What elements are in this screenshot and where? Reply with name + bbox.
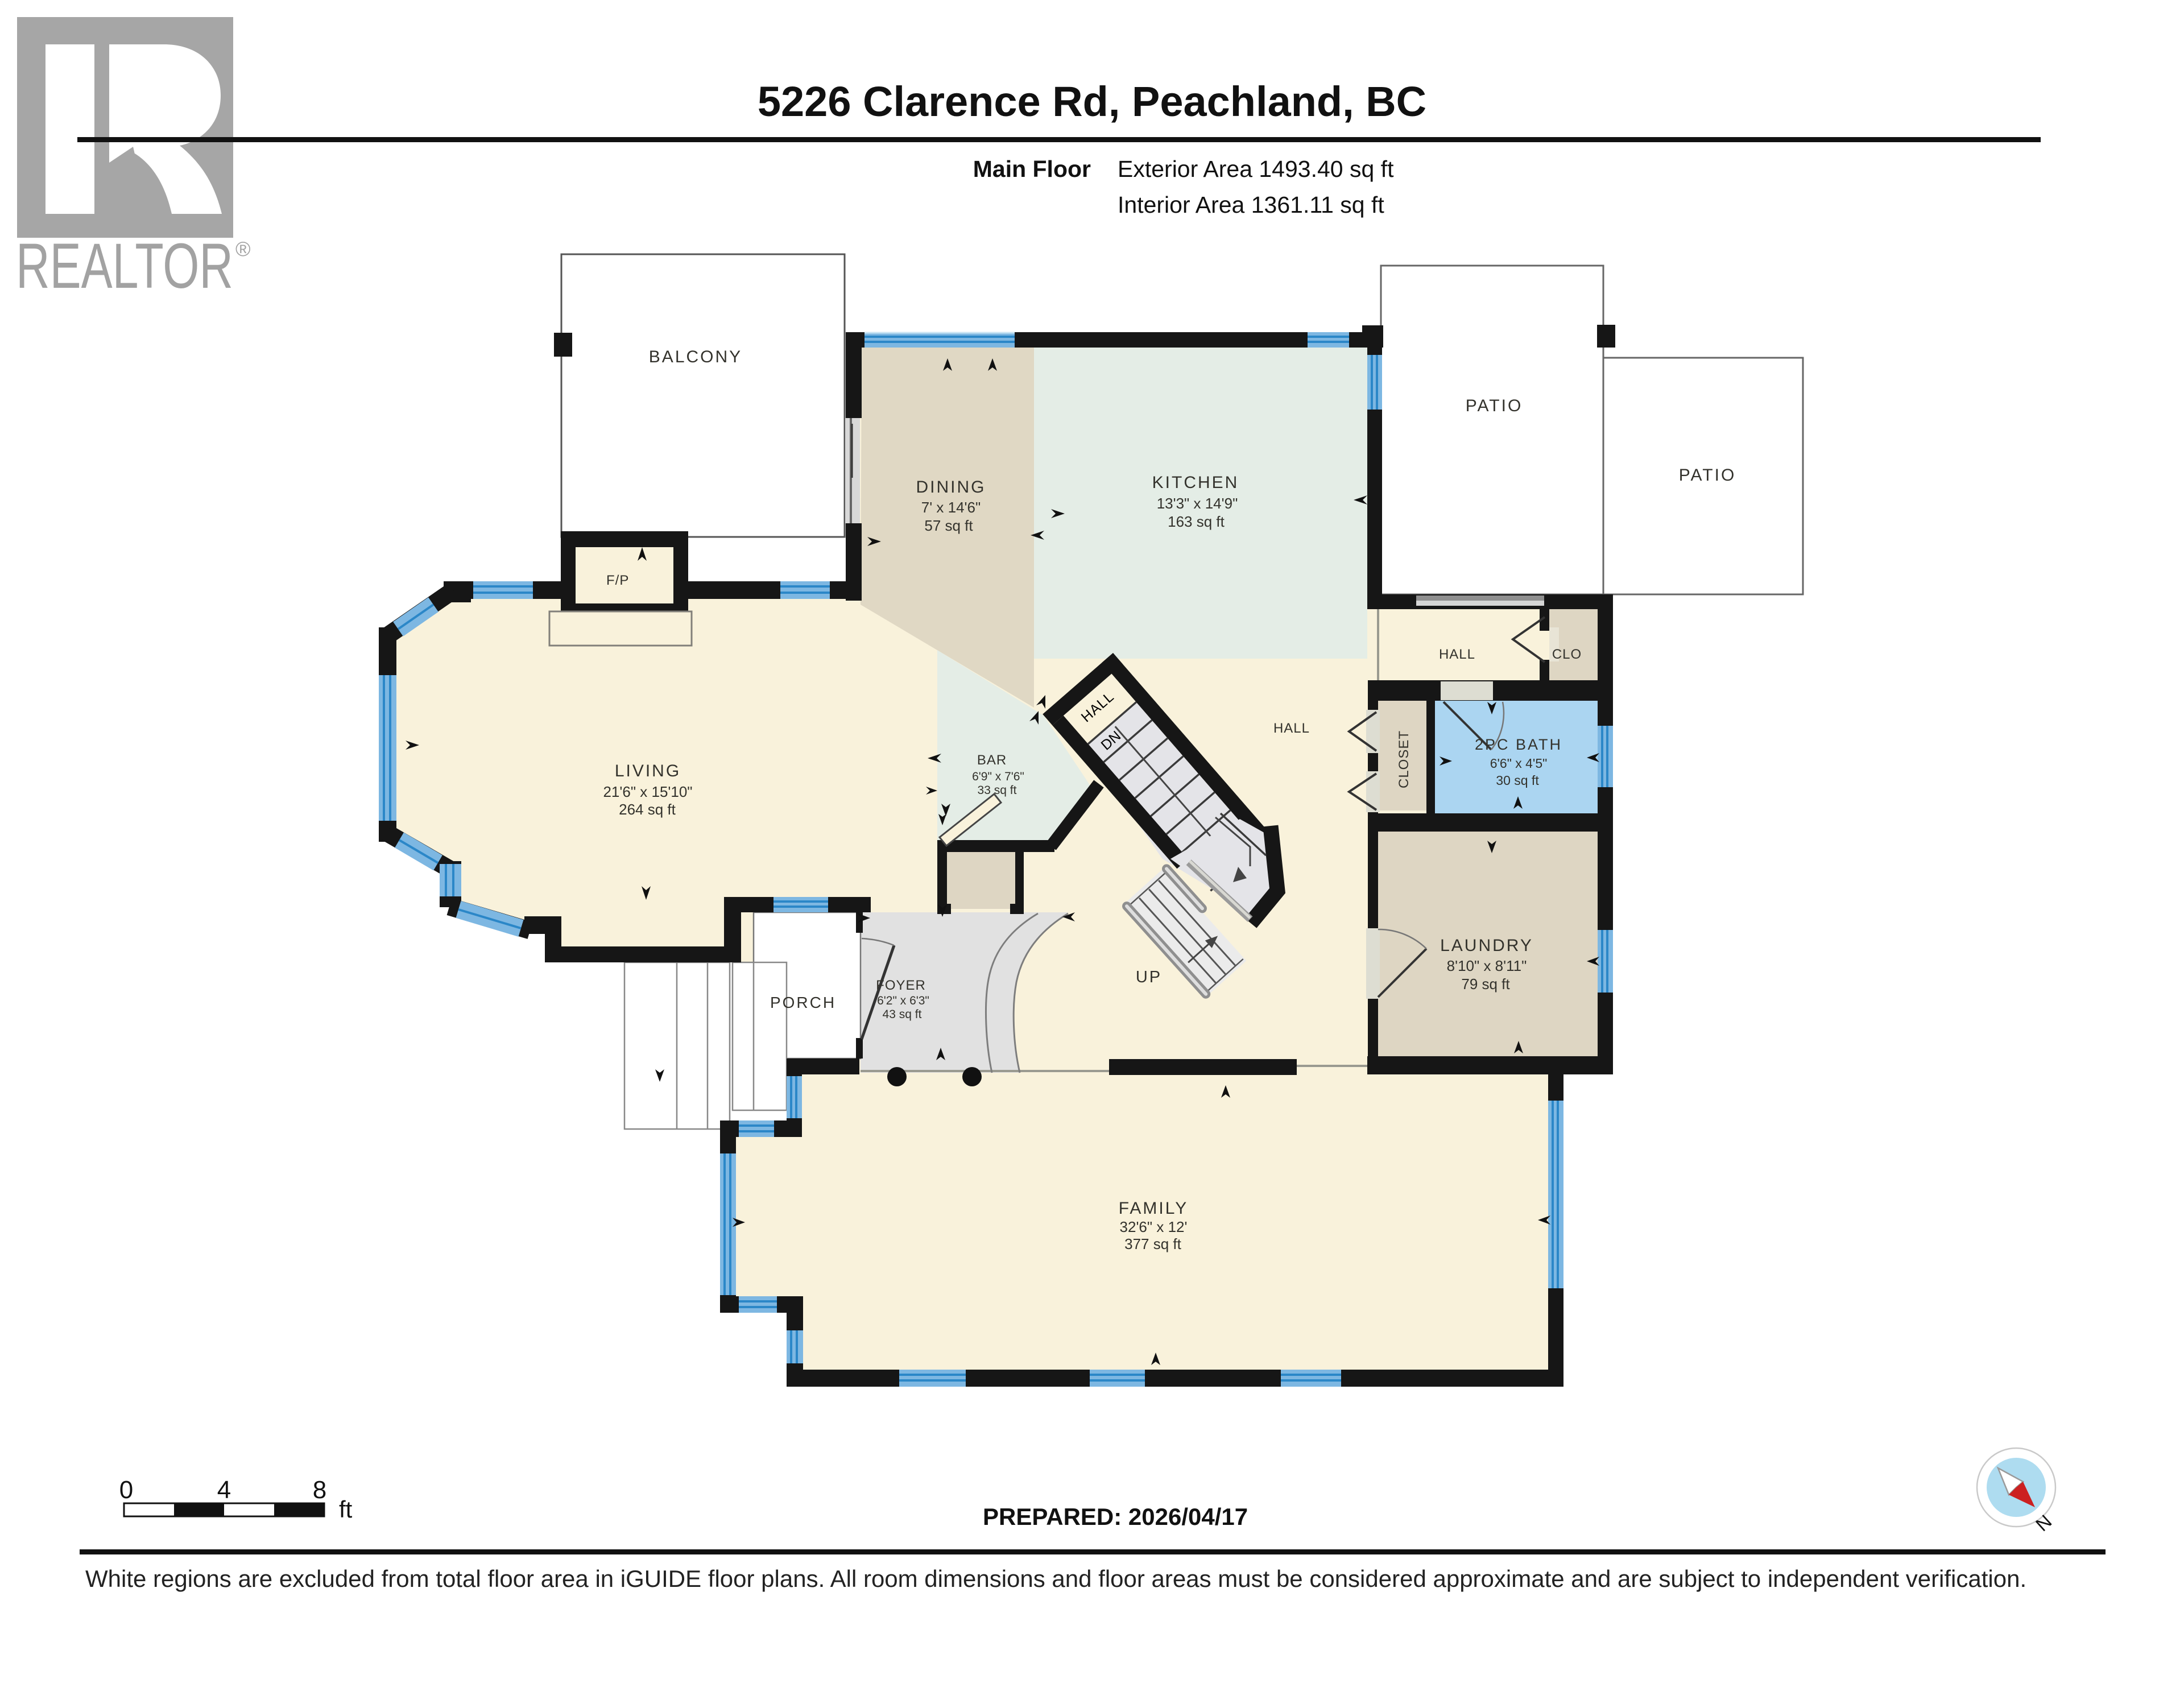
svg-text:BALCONY: BALCONY	[649, 348, 742, 366]
svg-text:BAR: BAR	[977, 752, 1007, 768]
svg-text:FAMILY: FAMILY	[1119, 1199, 1188, 1218]
svg-text:CLOSET: CLOSET	[1396, 730, 1412, 788]
svg-text:8: 8	[313, 1476, 326, 1504]
svg-text:HALL: HALL	[1439, 647, 1475, 662]
svg-text:7' x 14'6": 7' x 14'6"	[921, 499, 981, 516]
svg-text:57 sq ft: 57 sq ft	[924, 517, 973, 534]
svg-text:LIVING: LIVING	[615, 762, 681, 780]
svg-text:Main Floor: Main Floor	[973, 156, 1091, 182]
svg-text:PREPARED: 2026/04/17: PREPARED: 2026/04/17	[983, 1503, 1248, 1530]
svg-text:33 sq ft: 33 sq ft	[978, 784, 1017, 797]
svg-text:163 sq ft: 163 sq ft	[1168, 513, 1225, 530]
svg-text:PATIO: PATIO	[1466, 396, 1523, 415]
svg-text:2PC BATH: 2PC BATH	[1475, 736, 1562, 753]
svg-text:HALL: HALL	[1273, 721, 1310, 736]
svg-text:79 sq ft: 79 sq ft	[1461, 975, 1510, 993]
svg-text:6'9" x 7'6": 6'9" x 7'6"	[972, 770, 1024, 783]
svg-text:REALTOR: REALTOR	[16, 230, 233, 301]
svg-text:KITCHEN: KITCHEN	[1152, 473, 1239, 492]
svg-text:8'10" x 8'11": 8'10" x 8'11"	[1447, 957, 1527, 974]
svg-text:Exterior Area 1493.40 sq ft: Exterior Area 1493.40 sq ft	[1118, 156, 1394, 182]
svg-text:377 sq ft: 377 sq ft	[1124, 1235, 1182, 1252]
svg-text:21'6" x 15'10": 21'6" x 15'10"	[603, 783, 692, 800]
svg-text:LAUNDRY: LAUNDRY	[1440, 936, 1533, 955]
svg-text:4: 4	[217, 1476, 231, 1504]
svg-text:FOYER: FOYER	[876, 978, 926, 993]
svg-text:ft: ft	[339, 1496, 353, 1523]
svg-text:5226 Clarence Rd, Peachland, B: 5226 Clarence Rd, Peachland, BC	[758, 78, 1426, 125]
svg-text:DINING: DINING	[916, 478, 986, 497]
svg-text:F/P: F/P	[606, 573, 629, 588]
svg-text:®: ®	[235, 237, 251, 261]
svg-text:White regions are excluded fro: White regions are excluded from total fl…	[85, 1565, 2026, 1592]
svg-text:264 sq ft: 264 sq ft	[619, 801, 676, 818]
svg-text:UP: UP	[1136, 968, 1162, 986]
svg-text:0: 0	[119, 1476, 133, 1504]
svg-text:6'6" x 4'5": 6'6" x 4'5"	[1490, 756, 1548, 771]
svg-text:43 sq ft: 43 sq ft	[883, 1008, 922, 1021]
svg-text:13'3" x 14'9": 13'3" x 14'9"	[1157, 495, 1238, 512]
svg-text:PATIO: PATIO	[1679, 466, 1736, 485]
svg-text:PORCH: PORCH	[770, 994, 836, 1011]
svg-text:30 sq ft: 30 sq ft	[1496, 773, 1539, 788]
svg-text:6'2" x 6'3": 6'2" x 6'3"	[877, 994, 929, 1007]
svg-text:CLO: CLO	[1552, 647, 1582, 662]
svg-text:Interior Area 1361.11 sq ft: Interior Area 1361.11 sq ft	[1118, 192, 1384, 218]
svg-text:32'6" x 12': 32'6" x 12'	[1120, 1218, 1188, 1235]
